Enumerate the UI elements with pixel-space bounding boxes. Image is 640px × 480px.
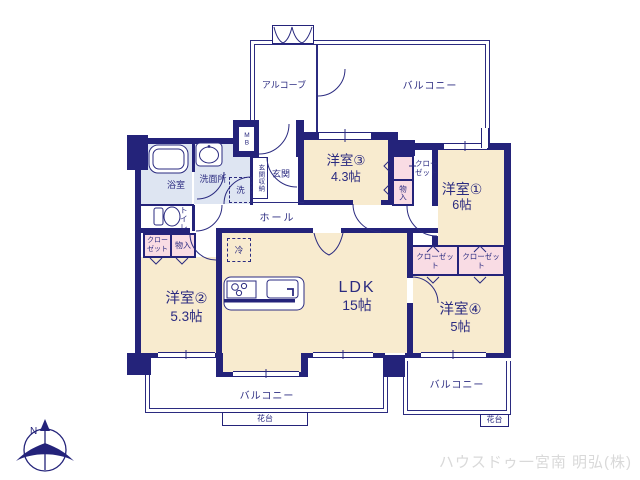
room2-name: 洋室② xyxy=(166,291,208,308)
toilet-label: トイレ xyxy=(177,205,190,233)
wall xyxy=(192,205,195,231)
wall xyxy=(135,144,141,358)
closet-by-room3-box xyxy=(392,155,414,181)
pipe-duct xyxy=(481,128,489,148)
flower-stand-left-label: 花台 xyxy=(222,412,308,425)
compass-north-label: N xyxy=(30,426,37,437)
room4-label: 洋室④ 5帖 xyxy=(423,299,498,337)
window xyxy=(313,352,373,358)
closet-room4-left-box: クローゼット xyxy=(411,245,459,276)
closet-room4-left-label: クローゼット xyxy=(413,247,457,274)
room1-name: 洋室① xyxy=(442,181,483,198)
room3-label: 洋室③ 4.3帖 xyxy=(303,150,389,188)
fridge-space-box: 冷 xyxy=(227,238,251,262)
room3-name: 洋室③ xyxy=(326,153,365,169)
company-watermark: ハウスドゥ一宮南 明弘(株) xyxy=(439,451,632,472)
meter-box-label: MB xyxy=(239,127,254,151)
wall xyxy=(127,353,151,375)
wall xyxy=(192,143,195,172)
wall xyxy=(383,355,405,377)
compass-arrowhead xyxy=(40,419,50,431)
window xyxy=(421,352,486,358)
compass: N xyxy=(16,419,74,471)
wall xyxy=(216,372,233,377)
compass-wings xyxy=(16,443,74,461)
wall xyxy=(407,303,413,358)
window xyxy=(319,132,371,140)
closet-by-room2-label: クロー ゼット xyxy=(145,235,170,256)
wall xyxy=(413,143,444,150)
wall xyxy=(303,200,353,205)
wall xyxy=(487,143,511,150)
ldk-size: 15帖 xyxy=(342,297,372,314)
wall xyxy=(504,150,511,358)
ldk-floor-extension xyxy=(222,353,303,372)
storage-by-room2-box: 物入 xyxy=(170,233,196,258)
wall xyxy=(301,353,313,358)
room1-label: 洋室① 6帖 xyxy=(424,177,500,217)
porch-box xyxy=(272,25,314,44)
room1-size: 6帖 xyxy=(452,198,471,213)
wall xyxy=(341,228,438,233)
window xyxy=(233,371,299,377)
wall xyxy=(393,140,415,156)
balcony-bottom-left-label: バルコニー xyxy=(234,390,300,404)
closet-room4-right-box: クローゼット xyxy=(457,245,505,276)
room2-size: 5.3帖 xyxy=(170,309,202,325)
alcove-balcony-divider xyxy=(316,44,318,146)
balcony-top-label: バルコニー xyxy=(388,80,472,94)
window xyxy=(158,352,215,358)
hall-label: ホール xyxy=(250,212,305,225)
ldk-name: LDK xyxy=(338,278,375,297)
wall xyxy=(405,353,421,358)
wall xyxy=(486,353,511,358)
closet-room4-right-label: クローゼット xyxy=(459,247,503,274)
storage-by-room2-label: 物入 xyxy=(172,235,194,256)
storage-by-room3-label: 物入 xyxy=(394,181,412,204)
room4-size: 5帖 xyxy=(450,319,470,335)
wall xyxy=(303,132,319,140)
entrance-label: 玄関 xyxy=(264,168,298,180)
fridge-space-label: 冷 xyxy=(228,239,250,261)
wall xyxy=(135,138,235,144)
bathroom-label: 浴室 xyxy=(157,179,195,191)
room2-label: 洋室② 5.3帖 xyxy=(150,289,223,327)
ldk-label: LDK 15帖 xyxy=(318,275,396,317)
alcove-label: アルコーブ xyxy=(251,79,317,92)
room3-size: 4.3帖 xyxy=(331,170,361,185)
room4-name: 洋室④ xyxy=(440,302,482,319)
floor-plan: アルコーブ バルコニー 花台 バルコニー 花台 バルコニー xyxy=(0,0,640,480)
flower-stand-right-label: 花台 xyxy=(480,414,509,426)
meter-box: MB xyxy=(238,126,255,152)
balcony-bottom-right-label: バルコニー xyxy=(424,379,490,393)
wall xyxy=(216,228,313,233)
bathroom-floor xyxy=(141,144,192,204)
storage-by-room3-box: 物入 xyxy=(392,179,414,206)
entrance-step-line xyxy=(253,202,304,203)
wall xyxy=(371,132,398,140)
closet-by-room3-label: クロー ゼット xyxy=(415,156,445,180)
closet-by-room2-box: クロー ゼット xyxy=(143,233,172,258)
washroom-label: 洗面所 xyxy=(190,173,236,185)
